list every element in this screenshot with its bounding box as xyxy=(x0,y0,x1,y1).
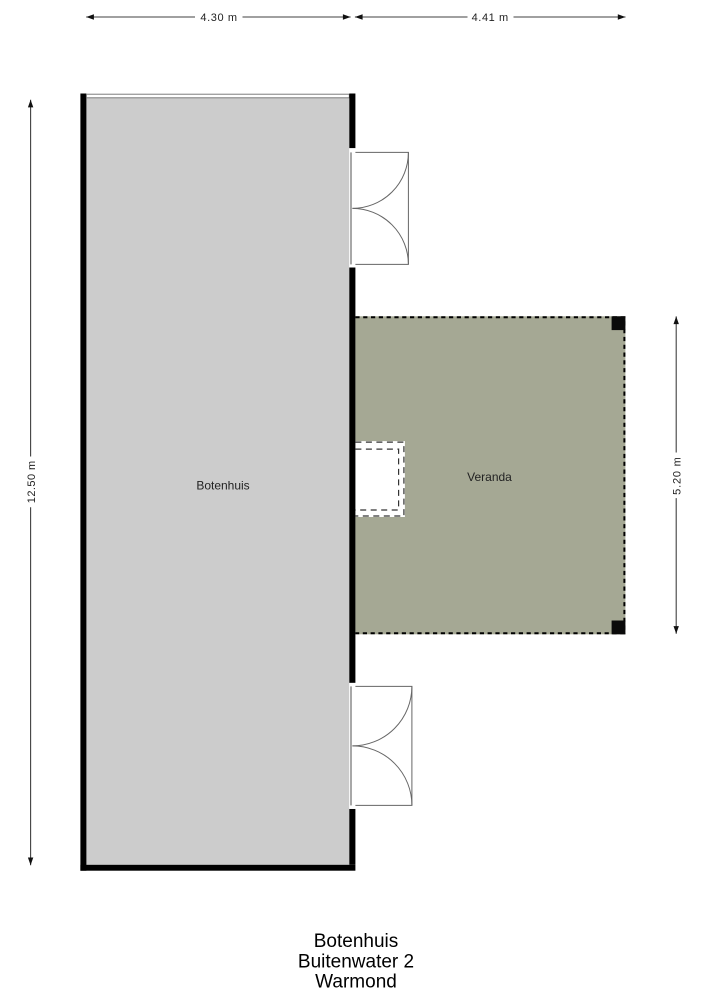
svg-text:Veranda: Veranda xyxy=(467,470,512,484)
svg-text:Botenhuis: Botenhuis xyxy=(314,931,399,952)
svg-text:4.41 m: 4.41 m xyxy=(472,12,509,24)
svg-text:4.30 m: 4.30 m xyxy=(200,12,237,24)
svg-text:Botenhuis: Botenhuis xyxy=(196,478,249,492)
svg-text:12.50 m: 12.50 m xyxy=(26,460,38,503)
svg-text:Warmond: Warmond xyxy=(315,972,397,993)
svg-text:Buitenwater 2: Buitenwater 2 xyxy=(298,951,414,972)
svg-text:5.20 m: 5.20 m xyxy=(672,456,684,494)
